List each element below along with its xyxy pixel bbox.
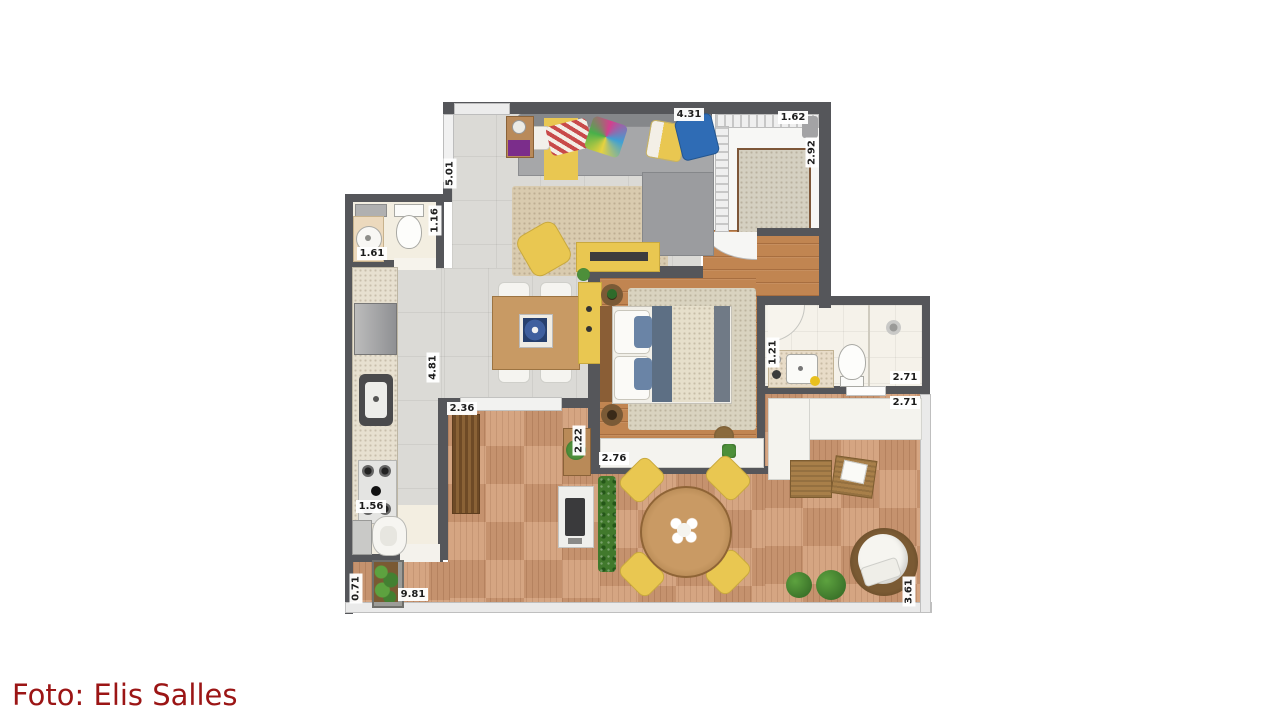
- window-bathroom: [846, 386, 886, 396]
- washbasin-drain: [365, 235, 371, 241]
- bed-cushion-blue: [634, 358, 652, 390]
- tv: [590, 252, 648, 261]
- dimension-label: 2.71: [890, 396, 920, 409]
- dimension-label: 2.36: [447, 402, 477, 415]
- dimension-label: 4.31: [674, 108, 704, 121]
- dimension-label: 1.16: [429, 206, 442, 236]
- grill-handle: [568, 538, 582, 544]
- washer: [352, 520, 372, 555]
- laundry-tub-basin: [380, 526, 397, 546]
- sideboard: [578, 282, 602, 364]
- plant-pot: [577, 268, 590, 281]
- shower-glass: [868, 305, 870, 386]
- floor-plan-image: 4.31 1.62 2.92 5.01 1.16 1.61 4.81 2.36 …: [0, 0, 1280, 719]
- bathroom-sink-drain: [798, 366, 803, 371]
- dimension-label: 1.21: [767, 338, 780, 368]
- dimension-label: 2.92: [806, 138, 819, 168]
- table-setting: [668, 514, 700, 546]
- bed-foot-blanket: [714, 306, 730, 402]
- dimension-label: 4.81: [427, 353, 440, 383]
- bush: [786, 572, 812, 598]
- nightstand: [601, 404, 623, 426]
- wall-deck-left: [438, 398, 448, 560]
- sink-drain: [373, 396, 379, 402]
- bath-yellow-stool: [810, 376, 820, 386]
- burner: [379, 465, 391, 477]
- entry-closet-carpet: [737, 148, 811, 234]
- wall-bathroom-top: [757, 296, 930, 305]
- dimension-label: 0.71: [350, 574, 363, 604]
- sideboard-knob: [586, 306, 592, 312]
- bed-runner: [652, 306, 672, 402]
- lavabo-toilet: [396, 215, 422, 249]
- dimension-label: 2.76: [599, 452, 629, 465]
- wall-lavabo-top: [345, 194, 444, 202]
- bath-accessory-dark: [772, 370, 781, 379]
- door-service: [400, 544, 440, 562]
- planter-hedge: [598, 476, 616, 572]
- dimension-label: 1.61: [357, 247, 387, 260]
- refrigerator: [354, 303, 397, 355]
- barbecue-grill: [565, 498, 585, 536]
- centerpiece-mandala: [523, 318, 547, 342]
- planter-plants: [374, 562, 398, 602]
- deck-bench: [452, 414, 480, 514]
- nightstand-plant: [607, 289, 617, 299]
- dimension-label: 2.22: [573, 426, 586, 456]
- bed-headboard: [600, 306, 612, 402]
- bed-cushion-blue: [634, 316, 652, 348]
- burner: [362, 465, 374, 477]
- wall-right-upper: [819, 102, 831, 308]
- dimension-label: 3.61: [903, 577, 916, 607]
- dimension-label: 2.71: [890, 371, 920, 384]
- bush: [816, 570, 846, 600]
- dimension-label: 1.56: [356, 500, 386, 513]
- photo-credit: Foto: Elis Salles: [12, 678, 238, 712]
- sideboard-knob: [586, 326, 592, 332]
- door-lavabo: [394, 258, 436, 270]
- dimension-label: 9.81: [398, 588, 428, 601]
- wicker-ottoman: [790, 460, 832, 498]
- window-top: [454, 103, 510, 115]
- wall-bathroom-right: [922, 296, 930, 394]
- decor-bowl: [512, 120, 526, 134]
- wall-closet-bottom: [757, 228, 819, 236]
- cooktop-knob: [371, 486, 381, 496]
- purple-cabinet: [508, 140, 530, 156]
- bed-duvet: [672, 306, 714, 402]
- dimension-label: 5.01: [444, 159, 457, 189]
- shower-head: [886, 320, 901, 335]
- dimension-label: 1.62: [778, 111, 808, 124]
- railing-bottom: [345, 602, 932, 613]
- toilet-bath: [838, 344, 866, 380]
